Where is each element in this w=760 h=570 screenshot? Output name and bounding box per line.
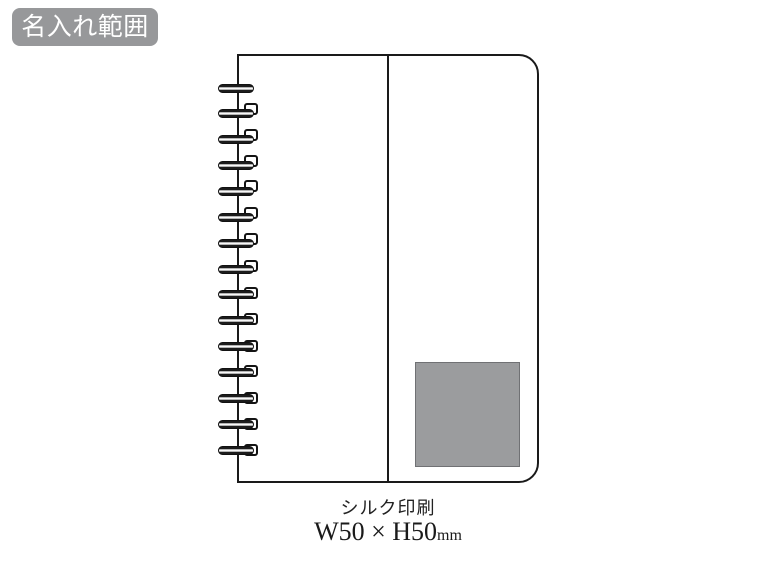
spiral-ring <box>218 420 254 429</box>
print-size-value: W50 × H50 <box>314 517 437 546</box>
spiral-ring <box>218 109 254 118</box>
spiral-ring <box>218 394 254 403</box>
print-method-label: シルク印刷 <box>237 498 539 518</box>
print-size-unit: mm <box>437 527 462 544</box>
ring-bar <box>218 135 254 144</box>
spiral-ring <box>218 368 254 377</box>
product-imprint-diagram: 名入れ範囲 シルク印刷 W50 × H50mm <box>0 0 760 570</box>
spiral-ring <box>218 316 254 325</box>
spiral-ring <box>218 213 254 222</box>
print-size-label: W50 × H50mm <box>237 518 539 550</box>
ring-bar <box>218 213 254 222</box>
notebook-spine-divider <box>387 56 389 481</box>
imprint-range-badge: 名入れ範囲 <box>12 8 158 46</box>
ring-bar <box>218 239 254 248</box>
ring-bar <box>218 368 254 377</box>
spiral-ring <box>218 265 254 274</box>
ring-bar <box>218 265 254 274</box>
ring-bar <box>218 446 254 455</box>
ring-bar <box>218 316 254 325</box>
ring-bar <box>218 394 254 403</box>
spiral-ring <box>218 446 254 455</box>
ring-bar <box>218 84 254 93</box>
ring-bar <box>218 420 254 429</box>
spiral-ring <box>218 135 254 144</box>
spiral-ring <box>218 290 254 299</box>
ring-bar <box>218 161 254 170</box>
ring-bar <box>218 342 254 351</box>
spiral-ring <box>218 161 254 170</box>
spiral-ring <box>218 187 254 196</box>
caption: シルク印刷 W50 × H50mm <box>237 498 539 550</box>
ring-bar <box>218 290 254 299</box>
spiral-ring <box>218 84 254 93</box>
spiral-ring <box>218 239 254 248</box>
ring-bar <box>218 187 254 196</box>
spiral-ring <box>218 342 254 351</box>
ring-bar <box>218 109 254 118</box>
print-area-square <box>415 362 520 467</box>
